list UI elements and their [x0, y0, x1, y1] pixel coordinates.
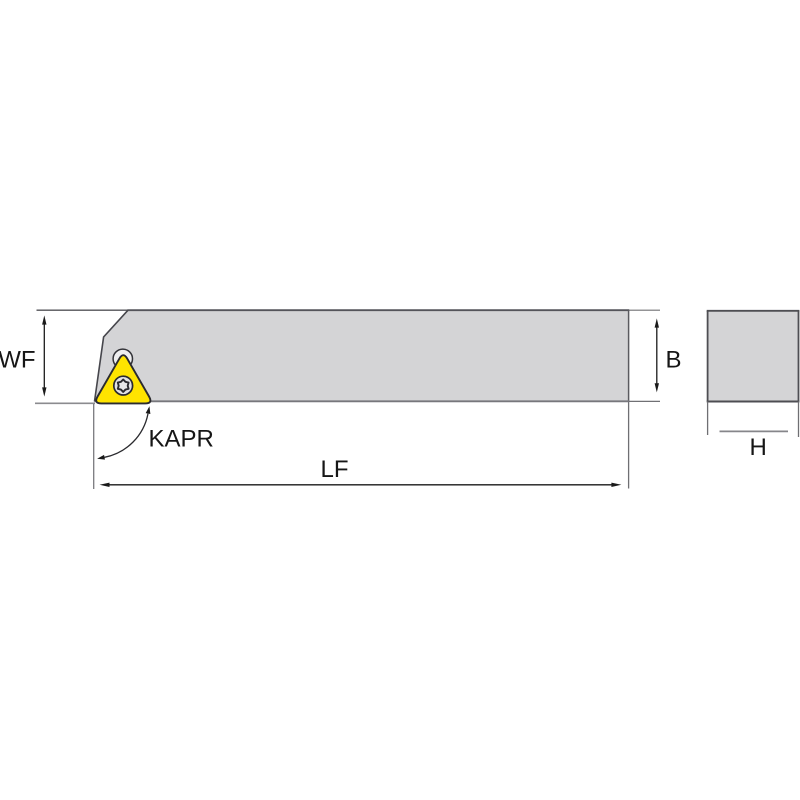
svg-text:WF: WF [0, 346, 36, 373]
svg-text:KAPR: KAPR [149, 425, 214, 452]
svg-text:H: H [750, 434, 767, 461]
svg-text:LF: LF [321, 456, 349, 483]
svg-text:B: B [666, 346, 682, 373]
